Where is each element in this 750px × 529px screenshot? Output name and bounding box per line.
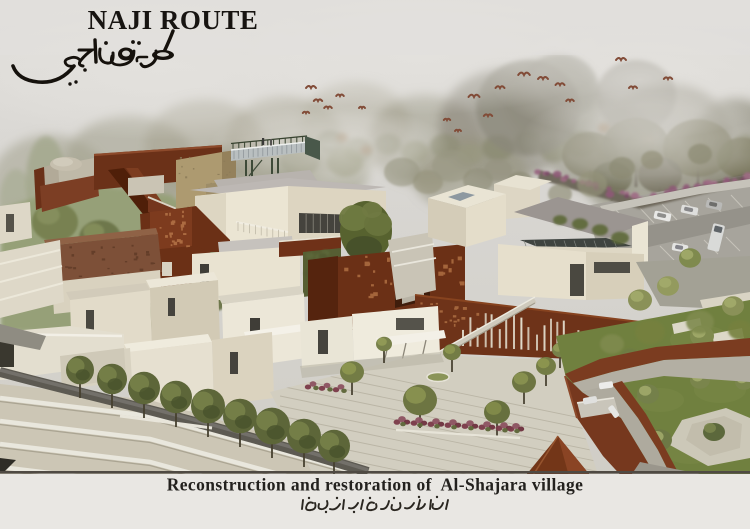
- svg-text:Reconstruction and restoration: Reconstruction and restoration of Al-Sha…: [167, 475, 584, 495]
